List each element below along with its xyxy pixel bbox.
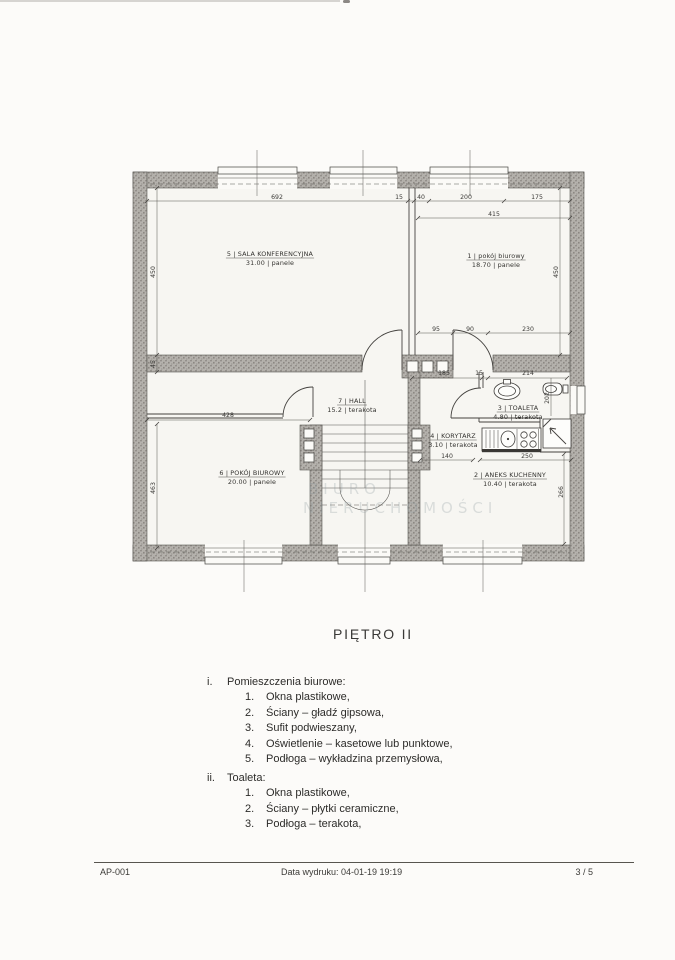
sink-basin-icon xyxy=(499,386,516,396)
kitchen-fixtures xyxy=(482,428,541,452)
dimension-label: 45 xyxy=(150,360,157,368)
watermark-line-2: NIERUCHOMOŚCI xyxy=(303,498,497,517)
footer-doc-id: AP-001 xyxy=(100,867,130,877)
burner-icon xyxy=(521,432,527,438)
spec-item-number: 5. xyxy=(245,752,266,768)
spec-section-heading: ii.Toaleta: xyxy=(207,770,627,786)
burner-icon xyxy=(530,432,536,438)
spec-item-text: Podłoga – wykładzina przemysłowa, xyxy=(266,752,443,768)
spec-list-item: 5.Podłoga – wykładzina przemysłowa, xyxy=(245,752,627,768)
spec-item-number: 4. xyxy=(245,737,266,753)
spec-section-heading: i.Pomieszczenia biurowe: xyxy=(207,674,627,690)
room-label: 2 | ANEKS KUCHENNY xyxy=(474,471,546,479)
footer-print-date: Data wydruku: 04-01-19 19:19 xyxy=(281,867,402,877)
dimension-label: 428 xyxy=(222,412,234,419)
spec-item-number: 2. xyxy=(245,802,266,818)
dimension-label: 230 xyxy=(522,326,534,333)
spec-item-number: 3. xyxy=(245,817,266,833)
page-title: PIĘTRO II xyxy=(333,626,413,642)
spec-item-text: Okna plastikowe, xyxy=(266,690,350,706)
spec-item-number: 1. xyxy=(245,690,266,706)
spec-item-text: Ściany – gładź gipsowa, xyxy=(266,706,384,722)
dimension-label: 463 xyxy=(150,482,157,494)
spec-item-number: 1. xyxy=(245,786,266,802)
dimension-label: 15 xyxy=(475,370,483,377)
dimension-label: 95 xyxy=(432,326,440,333)
room-label: 1 | pokój biurowy xyxy=(467,252,524,260)
burner-icon xyxy=(530,441,536,447)
spec-list-item: 3.Podłoga – terakota, xyxy=(245,817,627,833)
room-area-label: 18.70 | panele xyxy=(472,261,520,269)
burner-icon xyxy=(521,441,527,447)
room-label: 6 | POKÓJ BIUROWY xyxy=(219,468,284,477)
spec-item-text: Podłoga – terakota, xyxy=(266,817,361,833)
spec-item-text: Okna plastikowe, xyxy=(266,786,350,802)
room-area-label: 3.10 | terakota xyxy=(428,441,477,449)
specification-list: i.Pomieszczenia biurowe:1.Okna plastikow… xyxy=(207,674,627,833)
spec-section-title: Toaleta: xyxy=(227,770,266,786)
room-label: 4 | KORYTARZ xyxy=(430,432,476,440)
room-label: 5 | SALA KONFERENCYJNA xyxy=(227,250,314,258)
room-label: 7 | HALL xyxy=(338,397,366,405)
spec-list-item: 1.Okna plastikowe, xyxy=(245,690,627,706)
room-label: 3 | TOALETA xyxy=(498,404,539,412)
room-area-label: 10.40 | terakota xyxy=(483,480,537,488)
dimension-label: 200 xyxy=(460,194,472,201)
spec-section-title: Pomieszczenia biurowe: xyxy=(227,674,346,690)
dimension-label: 90 xyxy=(466,326,474,333)
tap-icon xyxy=(504,380,511,385)
spec-item-number: 3. xyxy=(245,721,266,737)
dimension-label: 450 xyxy=(150,266,157,278)
watermark-line-1: BIURO xyxy=(308,480,381,498)
dimension-label: 40 xyxy=(417,194,425,201)
spec-list-item: 2.Ściany – płytki ceramiczne, xyxy=(245,802,627,818)
dimension-label: 415 xyxy=(488,211,500,218)
dimension-label: 175 xyxy=(531,194,543,201)
cistern-icon xyxy=(563,385,568,393)
spec-list-item: 1.Okna plastikowe, xyxy=(245,786,627,802)
spec-list-item: 2.Ściany – gładź gipsowa, xyxy=(245,706,627,722)
spec-item-text: Oświetlenie – kasetowe lub punktowe, xyxy=(266,737,453,753)
dimension-label: 185 xyxy=(438,370,450,377)
dimension-label: 15 xyxy=(395,194,403,201)
scanned-page: BIURO NIERUCHOMOŚCI 69215402001754154504… xyxy=(0,0,675,960)
floor-plan: BIURO NIERUCHOMOŚCI 69215402001754154504… xyxy=(0,0,675,600)
spec-item-text: Ściany – płytki ceramiczne, xyxy=(266,802,399,818)
spec-item-number: 2. xyxy=(245,706,266,722)
dimension-label: 266 xyxy=(558,486,565,498)
dimension-label: 692 xyxy=(271,194,283,201)
room-area-label: 15.2 | terakota xyxy=(327,406,376,414)
dimension-label: 450 xyxy=(553,266,560,278)
dimension-label: 140 xyxy=(441,453,453,460)
room-area-label: 4.80 | terakota xyxy=(493,413,542,421)
spec-list-item: 3.Sufit podwieszany, xyxy=(245,721,627,737)
footer-page-number: 3 / 5 xyxy=(575,867,593,877)
room-area-label: 31.00 | panele xyxy=(246,259,294,267)
room-area-label: 20.00 | panele xyxy=(228,478,276,486)
spec-list-item: 4.Oświetlenie – kasetowe lub punktowe, xyxy=(245,737,627,753)
dimension-label: 250 xyxy=(521,453,533,460)
spec-section-marker: i. xyxy=(207,674,227,690)
footer-rule xyxy=(94,862,634,863)
dimension-label: 202 xyxy=(544,392,551,404)
dimension-label: 214 xyxy=(522,370,534,377)
spec-section-marker: ii. xyxy=(207,770,227,786)
spec-item-text: Sufit podwieszany, xyxy=(266,721,357,737)
